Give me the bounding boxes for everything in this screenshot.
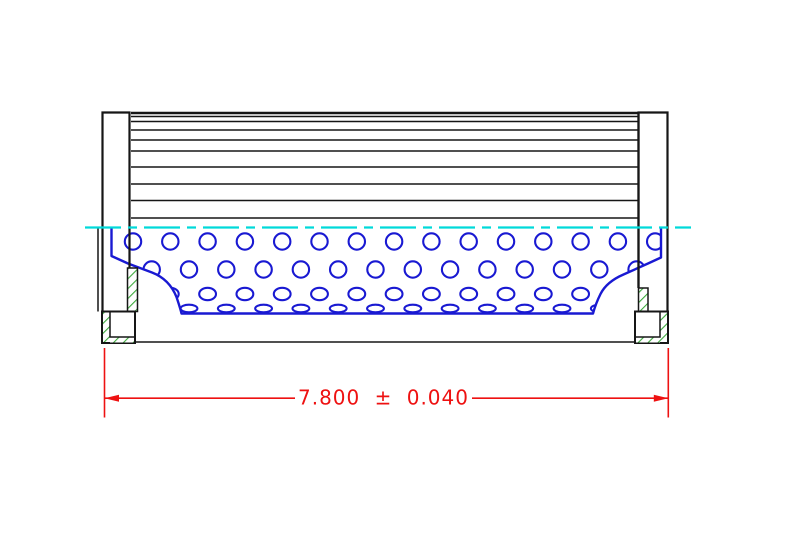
- perforation-hole: [274, 288, 291, 300]
- perforation-hole: [479, 261, 495, 277]
- pleat-lines: [131, 117, 639, 201]
- right-foot-hatch-side: [660, 313, 667, 343]
- perforation-hole: [610, 233, 626, 249]
- pleat-block: [131, 113, 639, 218]
- left-cap-outline: [103, 113, 130, 312]
- perforation-hole: [218, 261, 234, 277]
- perforation-hole: [237, 288, 254, 300]
- perforation-hole: [461, 233, 477, 249]
- perforation-hole: [199, 233, 215, 249]
- perforation-hole: [125, 233, 141, 249]
- perforation-hole: [162, 233, 178, 249]
- left-foot: [102, 312, 135, 344]
- perforation-hole: [181, 261, 197, 277]
- perforation-hole: [255, 261, 271, 277]
- perforation-hole: [535, 233, 551, 249]
- left-arrowhead-icon: [105, 395, 120, 402]
- filter-element-section-drawing: 7.800 ± 0.040: [0, 0, 789, 546]
- right-foot-hatch-bottom: [636, 337, 660, 343]
- perforation-hole: [255, 305, 272, 313]
- perforation-hole: [517, 261, 533, 277]
- perforation-hole: [610, 288, 627, 300]
- perforation-hole: [554, 305, 571, 313]
- perforation-hole: [311, 233, 327, 249]
- perforation-hole: [367, 261, 383, 277]
- perforation-hole: [460, 288, 477, 300]
- perforation-hole: [404, 305, 421, 313]
- left-foot-hatch-bottom: [110, 337, 134, 343]
- perforation-hole: [554, 261, 570, 277]
- perforation-hole: [218, 305, 235, 313]
- right-cap-outline: [639, 113, 668, 312]
- perforation-hole: [572, 288, 589, 300]
- perforation-hole: [237, 233, 253, 249]
- right-bond-hatch: [639, 288, 649, 312]
- perforation-hole: [143, 305, 160, 313]
- perforation-hole: [199, 288, 216, 300]
- perforation-hole: [479, 305, 496, 313]
- perforation-hole: [442, 305, 459, 313]
- technical-drawing-page: 7.800 ± 0.040: [0, 0, 789, 546]
- perforation-hole: [311, 288, 328, 300]
- perforation-hole: [442, 261, 458, 277]
- perforation-hole: [386, 233, 402, 249]
- perforation-hole: [572, 233, 588, 249]
- perforation-hole: [293, 305, 310, 313]
- perforation-hole: [348, 288, 365, 300]
- left-bond-hatch: [128, 268, 138, 312]
- perforation-hole: [405, 261, 421, 277]
- perforation-hole: [386, 288, 403, 300]
- perforation-hole: [423, 233, 439, 249]
- dimension-label: 7.800 ± 0.040: [298, 386, 469, 410]
- right-arrowhead-icon: [654, 395, 669, 402]
- length-dimension: 7.800 ± 0.040: [105, 348, 669, 418]
- left-foot-hatch-side: [103, 313, 110, 343]
- perforation-hole: [349, 233, 365, 249]
- perforation-hole: [330, 261, 346, 277]
- perforation-hole: [591, 261, 607, 277]
- perforation-hole: [535, 288, 552, 300]
- perforation-hole: [181, 305, 198, 313]
- perforation-holes: [125, 233, 664, 312]
- perforation-hole: [498, 233, 514, 249]
- perforation-hole: [498, 288, 515, 300]
- perforation-hole: [423, 288, 440, 300]
- perforation-hole: [330, 305, 347, 313]
- perforated-core: [112, 228, 664, 314]
- perforation-hole: [293, 261, 309, 277]
- perforation-hole: [274, 233, 290, 249]
- right-foot: [635, 312, 668, 344]
- perforation-hole: [516, 305, 533, 313]
- perforation-hole: [367, 305, 384, 313]
